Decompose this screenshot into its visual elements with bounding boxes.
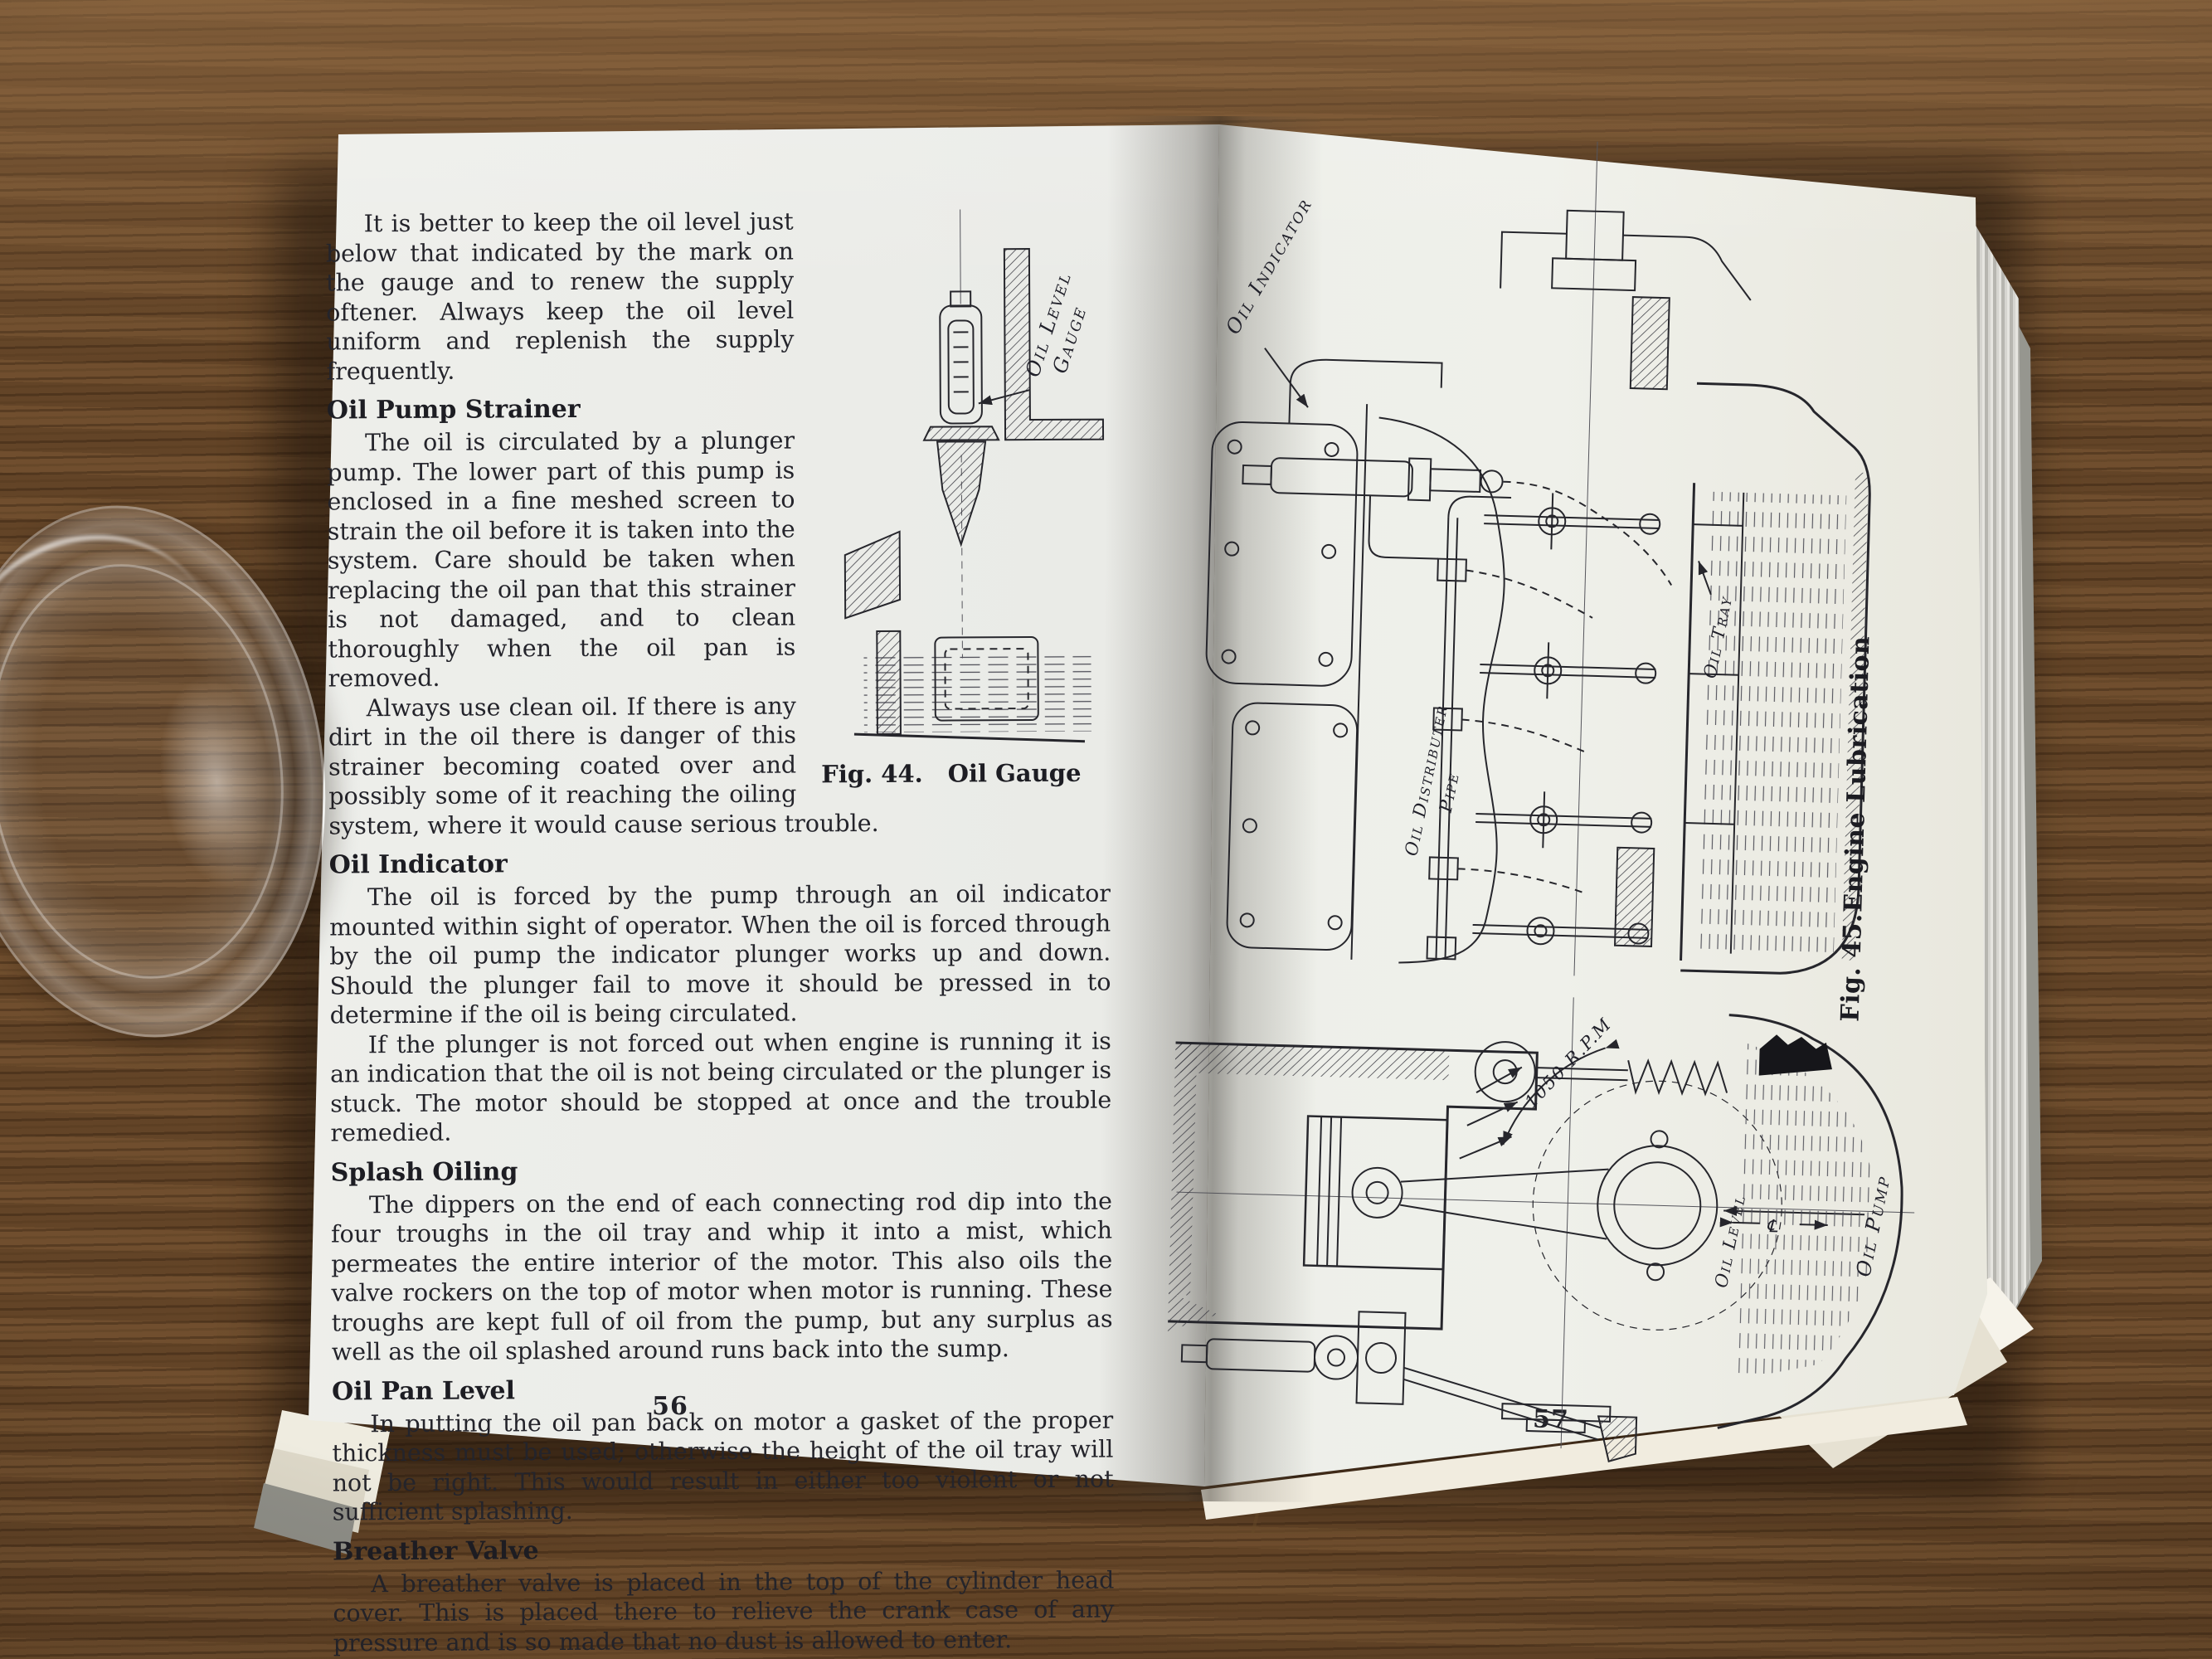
gauge-flange-hatch [937,441,986,544]
figure-44-title: Oil Gauge [948,758,1082,787]
oil-indicator-lower [1179,1306,1640,1462]
photo-of-open-manual: Oil Level Gauge Fig. 44.Oil Gauge It is … [0,0,2212,1659]
pan-bottom [854,733,1085,742]
oil-gauge-drawing: Oil Level Gauge [815,206,1110,747]
page-number-56: 56 [330,1392,1010,1421]
paragraph-splash-oiling: The dippers on the end of each connectin… [331,1186,1113,1367]
figure-45-caption: Fig. 45. Engine Lubrication [1836,635,1876,1022]
oil-indicator-label: Oil Indicator [1221,193,1317,338]
gauge-nut [924,426,999,440]
svg-text:Fig. 45.: Fig. 45. [1836,912,1869,1022]
heading-splash-oiling: Splash Oiling [331,1154,1112,1188]
valve-cover-plates [1198,421,1366,951]
figure-44-caption: Fig. 44.Oil Gauge [821,758,1081,789]
paragraph-breather-valve: A breather valve is placed in the top of… [333,1565,1115,1657]
oil-distributer-pipe [1427,496,1596,963]
pan-wall-hatch [877,631,901,734]
svg-text:Pipe: Pipe [1436,770,1464,815]
figure-44-oil-gauge: Oil Level Gauge Fig. 44.Oil Gauge [815,206,1111,790]
oil-distributer-pipe-label: Oil Distributer Pipe [1401,703,1475,863]
oil-level-gauge-label: Oil Level Gauge [1021,268,1100,387]
left-page-text-column: Oil Level Gauge Fig. 44.Oil Gauge It is … [326,206,1116,1659]
paragraph-indicator-2: If the plunger is not forced out when en… [330,1026,1112,1148]
svg-text:Oil Indicator: Oil Indicator [1221,193,1317,338]
engine-longitudinal-section: Oil Indicator Oil Distributer Pipe Oil T… [1198,131,1879,984]
gauge-body [940,291,982,423]
engine-transverse-section: 1050 R.P.M Oil Level ℄ Oil Pump [1164,986,1920,1470]
rpm-arrow: 1050 R.P.M [1460,1010,1616,1162]
svg-text:1050 R.P.M: 1050 R.P.M [1521,1014,1616,1112]
figure-45-engine-lubrication: Oil Indicator Oil Distributer Pipe Oil T… [1135,119,2002,1486]
glass-inner-rim [0,545,310,999]
heading-oil-indicator: Oil Indicator [329,847,1111,881]
paragraph-indicator-1: The oil is forced by the pump through an… [329,879,1111,1030]
heading-breather-valve: Breather Valve [333,1533,1114,1567]
casting-bracket-hatch [845,532,901,618]
paragraph-oil-pan-level: In putting the oil pan back on motor a g… [332,1405,1114,1527]
svg-text:℄: ℄ [1766,1216,1779,1236]
figure-44-number: Fig. 44. [821,759,923,788]
svg-text:Engine Lubrication: Engine Lubrication [1839,635,1875,912]
